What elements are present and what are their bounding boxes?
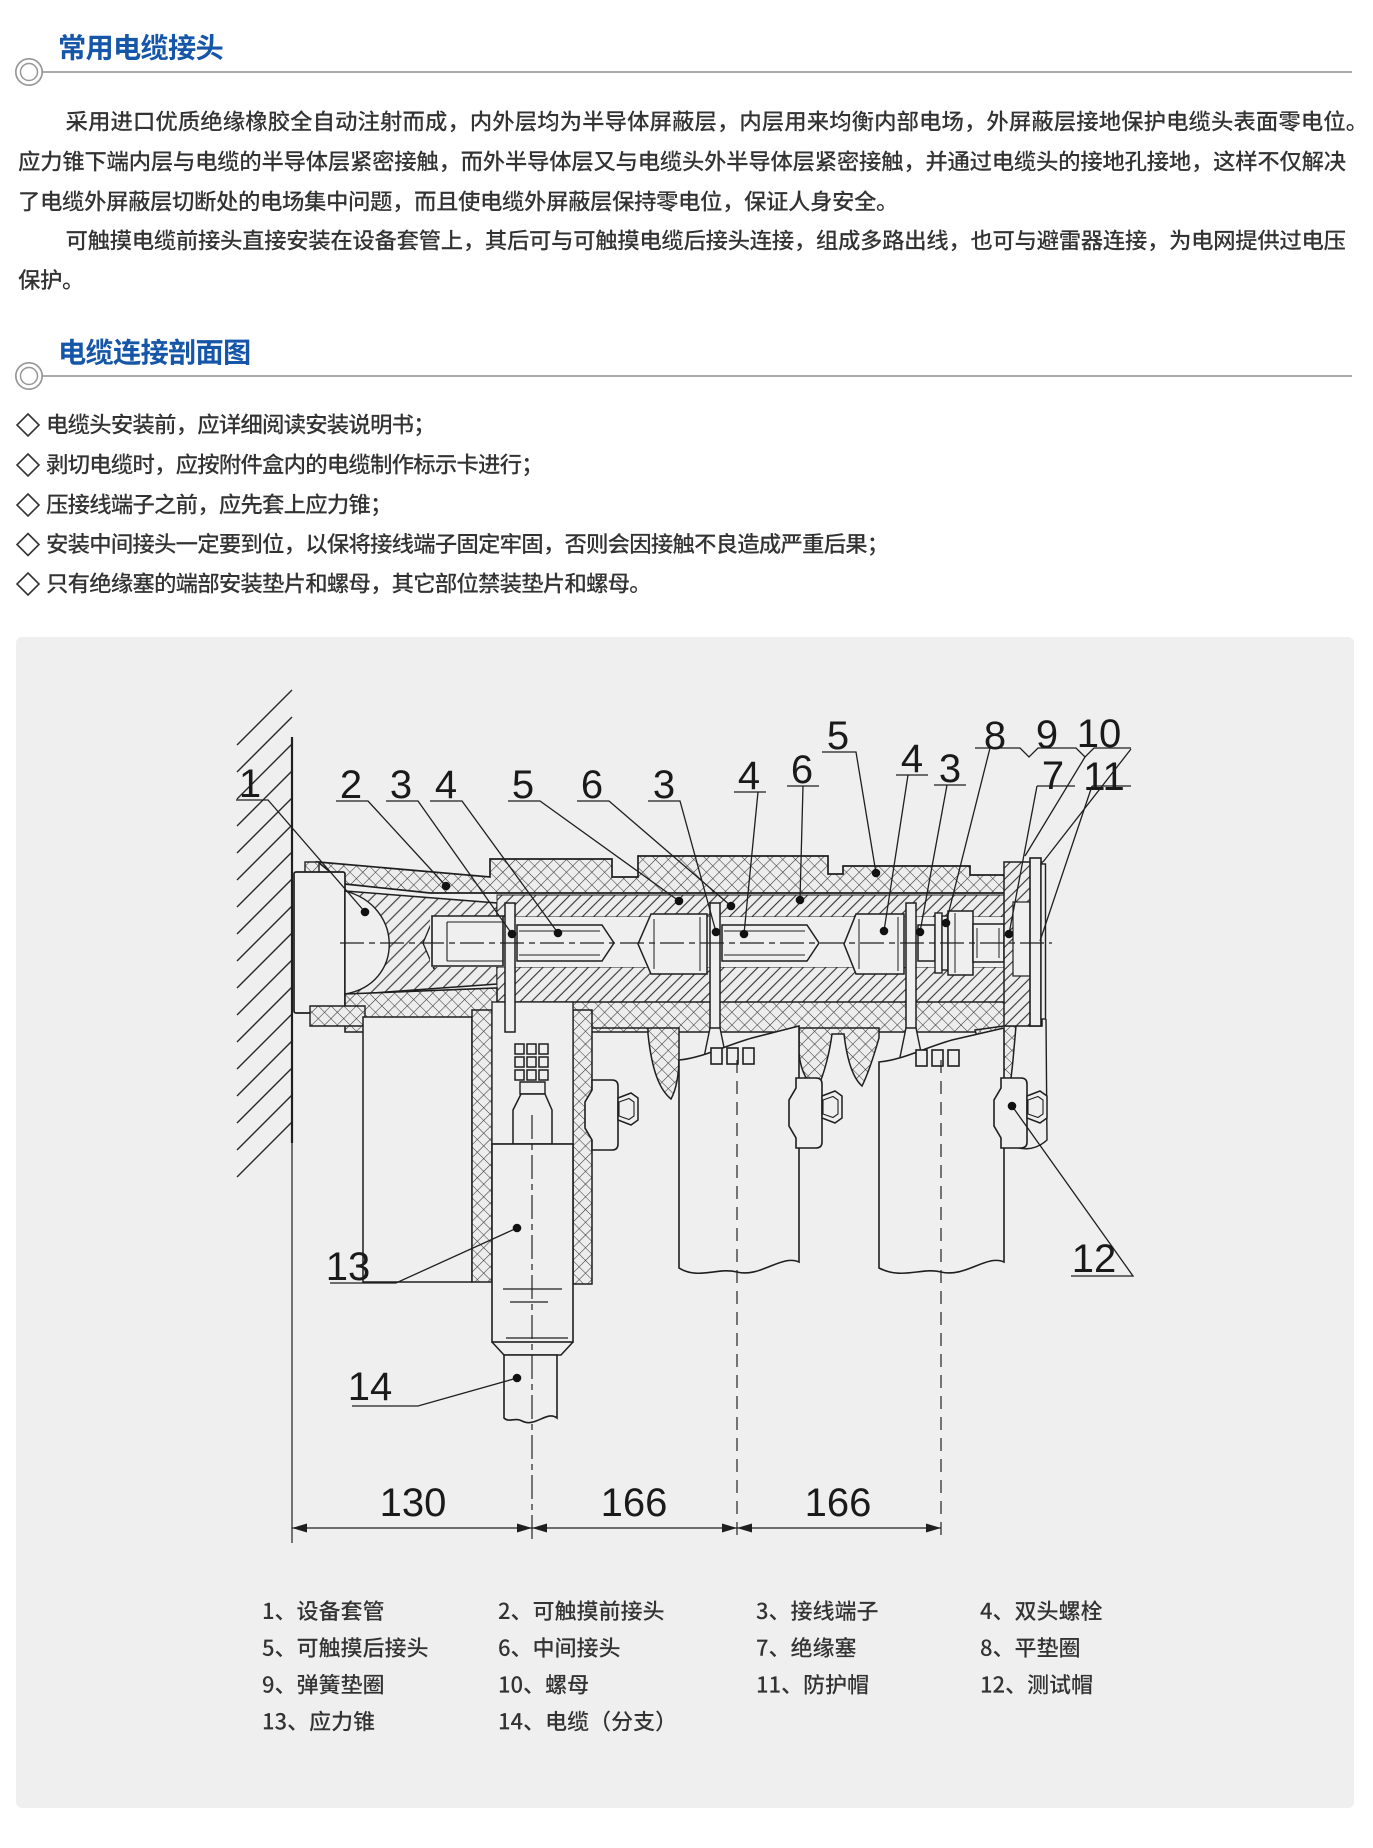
svg-text:10: 10 [1077,712,1122,756]
svg-text:130: 130 [380,1481,447,1525]
svg-text:14: 14 [348,1365,393,1409]
svg-text:4: 4 [901,737,923,781]
svg-text:4: 4 [435,763,457,807]
svg-text:4: 4 [738,754,760,798]
svg-text:9: 9 [1036,713,1058,757]
svg-text:7: 7 [1042,754,1064,798]
svg-text:3: 3 [939,747,961,791]
svg-text:166: 166 [601,1481,668,1525]
svg-text:5: 5 [512,763,534,807]
svg-text:2: 2 [340,763,362,807]
svg-text:12: 12 [1072,1237,1117,1281]
svg-text:8: 8 [984,714,1006,758]
svg-text:166: 166 [805,1481,872,1525]
svg-text:6: 6 [581,763,603,807]
svg-text:5: 5 [827,714,849,758]
svg-text:13: 13 [326,1245,371,1289]
svg-text:6: 6 [791,748,813,792]
svg-text:1: 1 [239,762,261,806]
svg-text:3: 3 [653,763,675,807]
svg-text:11: 11 [1083,755,1125,799]
svg-text:3: 3 [390,763,412,807]
